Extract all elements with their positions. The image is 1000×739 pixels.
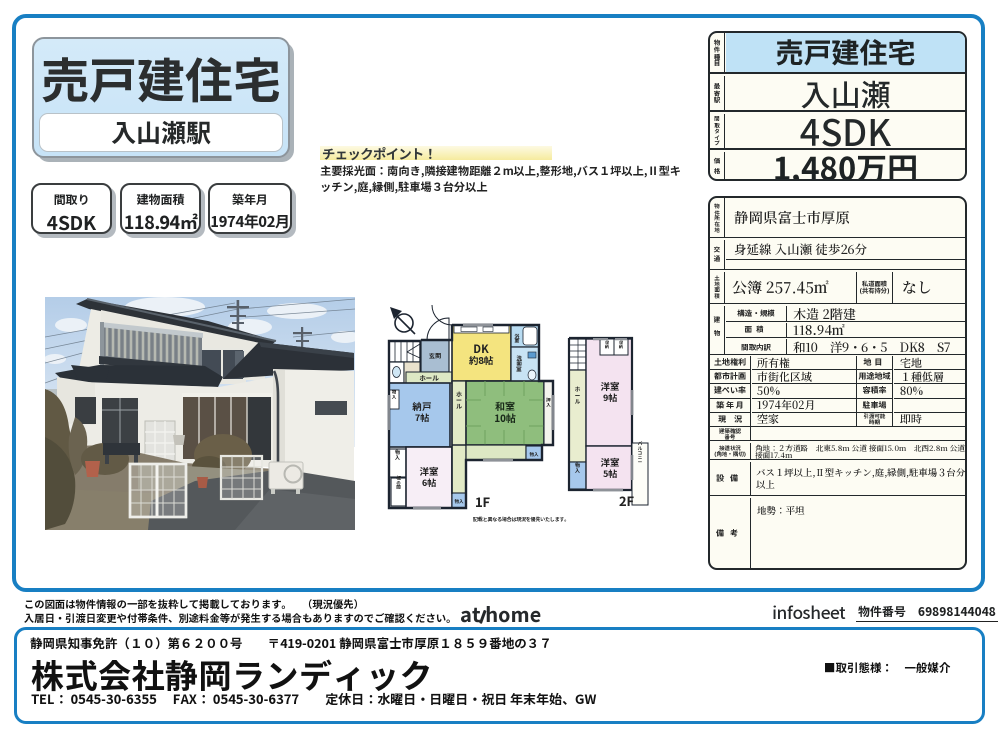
svg-text:物入: 物入	[394, 450, 402, 460]
svg-text:2F: 2F	[619, 491, 634, 510]
svg-text:板の間: 板の間	[396, 475, 402, 489]
svg-text:約8帖: 約8帖	[469, 353, 494, 367]
svg-text:7帖: 7帖	[415, 411, 429, 424]
svg-text:収納: 収納	[604, 340, 610, 348]
svg-text:ホール: ホール	[574, 387, 582, 405]
svg-text:押入: 押入	[546, 398, 552, 408]
svg-text:バルコニー: バルコニー	[637, 441, 643, 464]
svg-text:収納: 収納	[618, 340, 624, 348]
svg-text:6帖: 6帖	[422, 476, 436, 489]
svg-text:物入: 物入	[391, 390, 397, 400]
svg-text:洗面室: 洗面室	[515, 355, 523, 372]
svg-text:ホール: ホール	[455, 391, 464, 410]
svg-text:9帖: 9帖	[603, 391, 617, 404]
svg-text:10帖: 10帖	[494, 410, 516, 425]
svg-text:5帖: 5帖	[603, 467, 617, 480]
svg-text:物入: 物入	[530, 452, 539, 458]
svg-text:浴室: 浴室	[513, 333, 521, 343]
svg-text:物入: 物入	[574, 463, 582, 473]
svg-text:1F: 1F	[475, 492, 490, 511]
svg-text:ホール: ホール	[419, 373, 439, 383]
svg-text:玄関: 玄関	[428, 351, 441, 360]
svg-text:物入: 物入	[455, 499, 464, 505]
